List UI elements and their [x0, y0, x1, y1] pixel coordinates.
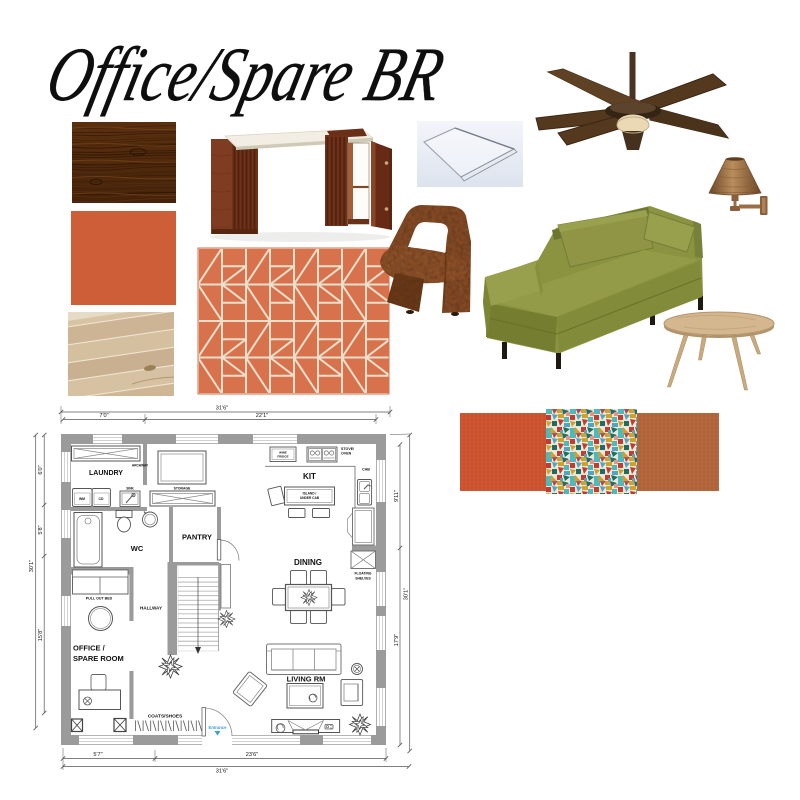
- svg-text:5'7": 5'7": [93, 752, 102, 758]
- svg-text:31'6": 31'6": [216, 769, 228, 775]
- svg-text:STORAGE: STORAGE: [174, 487, 191, 491]
- svg-text:LIVING RM: LIVING RM: [287, 675, 326, 684]
- svg-text:PANTRY: PANTRY: [182, 533, 212, 542]
- svg-text:9'11": 9'11": [394, 490, 400, 502]
- svg-text:KIT: KIT: [303, 472, 316, 481]
- svg-text:7'0": 7'0": [99, 413, 108, 419]
- svg-text:31'6": 31'6": [216, 406, 228, 412]
- svg-text:HALLWAY: HALLWAY: [140, 606, 162, 611]
- svg-text:FLOATING: FLOATING: [354, 572, 371, 576]
- svg-text:30'1": 30'1": [29, 560, 35, 572]
- svg-text:WC: WC: [131, 544, 144, 553]
- svg-text:LAUNDRY: LAUNDRY: [89, 470, 123, 477]
- svg-text:DINING: DINING: [294, 558, 322, 567]
- svg-text:WM: WM: [79, 497, 85, 501]
- svg-text:ISLAND /: ISLAND /: [303, 492, 317, 496]
- svg-text:30'1": 30'1": [404, 588, 410, 600]
- svg-text:COATS/SHOES: COATS/SHOES: [148, 714, 183, 720]
- svg-text:OFFICE /: OFFICE /: [73, 644, 106, 653]
- svg-text:Office/Spare BR: Office/Spare BR: [39, 31, 452, 117]
- svg-text:SHELVES: SHELVES: [355, 577, 371, 581]
- svg-text:22'1": 22'1": [256, 413, 268, 419]
- svg-text:15'8": 15'8": [38, 629, 44, 641]
- svg-text:CAB: CAB: [362, 468, 370, 472]
- svg-text:OVEN: OVEN: [341, 452, 352, 456]
- svg-text:STOVE/: STOVE/: [341, 447, 354, 451]
- svg-text:PULL OUT BED: PULL OUT BED: [86, 597, 113, 601]
- svg-text:17'9": 17'9": [394, 634, 400, 646]
- svg-text:6'0": 6'0": [38, 465, 44, 474]
- svg-text:UNDER CAB: UNDER CAB: [300, 496, 320, 500]
- svg-text:5'8": 5'8": [38, 525, 44, 534]
- svg-text:Entrance: Entrance: [209, 725, 228, 730]
- svg-text:ARCHWAY: ARCHWAY: [132, 464, 149, 468]
- svg-text:23'6": 23'6": [246, 752, 258, 758]
- svg-text:FRIDGE: FRIDGE: [277, 455, 288, 459]
- svg-text:SINK: SINK: [126, 487, 134, 491]
- svg-text:CD: CD: [99, 497, 104, 501]
- svg-text:SPARE ROOM: SPARE ROOM: [73, 654, 124, 663]
